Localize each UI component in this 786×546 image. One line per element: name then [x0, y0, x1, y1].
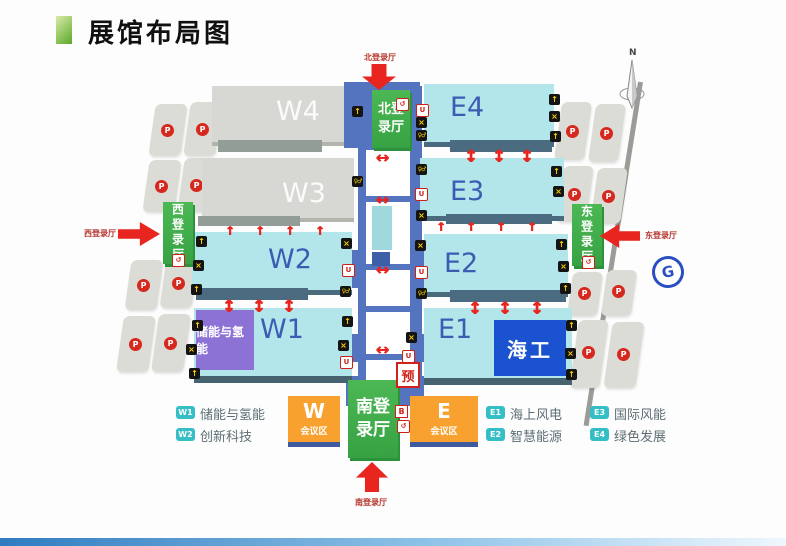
conference-area-east: E 会议区: [410, 396, 478, 447]
hall-w4-label: W4: [276, 96, 320, 127]
restroom-icon: ♀♂: [416, 130, 427, 141]
compass-north-label: N: [629, 48, 637, 58]
restroom-icon: ♀♂: [416, 288, 427, 299]
parking-icon: P: [129, 338, 142, 351]
drink-icon: U: [415, 188, 428, 201]
parking-icon: P: [602, 190, 615, 203]
dining-icon: ×: [416, 210, 427, 221]
drink-icon: U: [342, 264, 355, 277]
entry-arrow-up: ↑: [285, 225, 295, 237]
flow-arrow-vertical: ↕: [222, 299, 236, 316]
service-icon: ↺: [396, 98, 409, 111]
entry-arrow-up: ↑: [315, 225, 325, 237]
gate-icon: ↑: [189, 368, 200, 379]
metro-logo: G: [649, 253, 687, 291]
entry-arrow-up: ↑: [496, 221, 506, 233]
flow-arrow-vertical: ↕: [498, 301, 512, 318]
gate-icon: ↑: [352, 106, 363, 117]
restroom-icon: ♀♂: [416, 164, 427, 175]
legend-badge-w2: W2: [176, 428, 195, 441]
south-entrance-caption: 南登录厅: [355, 497, 387, 508]
legend-label-w1: 储能与氢能: [200, 404, 265, 423]
gate-icon: ↑: [192, 320, 203, 331]
dining-icon: ×: [553, 186, 564, 197]
legend-label-e2: 智慧能源: [510, 426, 562, 445]
parking-icon: P: [578, 287, 591, 300]
dining-icon: ×: [193, 260, 204, 271]
parking-icon: P: [582, 346, 595, 359]
legend-label-e4: 绿色发展: [614, 426, 666, 445]
drink-icon: U: [415, 266, 428, 279]
parking-icon: P: [164, 337, 177, 350]
entrance-south-hall-label: 南登录厅: [355, 396, 392, 442]
legend-badge-e2: E2: [486, 428, 505, 441]
flow-arrow-vertical: ↕: [282, 299, 296, 316]
entry-arrow-up: ↑: [255, 225, 265, 237]
service-icon: ↺: [172, 254, 185, 267]
flow-arrow-vertical: ↕: [530, 301, 544, 318]
flow-arrow-vertical: ↕: [464, 149, 478, 166]
entry-arrow-up: ↑: [527, 221, 537, 233]
parking-icon: P: [568, 188, 581, 201]
gate-icon: ↑: [550, 131, 561, 142]
flow-arrow-vertical: ↕: [520, 149, 534, 166]
legend-badge-e3: E3: [590, 406, 609, 419]
legend-badge-e1: E1: [486, 406, 505, 419]
legend-badge-e4: E4: [590, 428, 609, 441]
drink-icon: U: [340, 356, 353, 369]
north-entrance-caption: 北登录厅: [364, 52, 396, 63]
gate-icon: ↑: [556, 239, 567, 250]
gate-icon: ↑: [196, 236, 207, 247]
zone-marine-engineering-label: 海工: [507, 334, 553, 363]
corridor-bridge: [372, 206, 392, 250]
b-service-badge: B: [395, 405, 408, 418]
conference-west-letter: W: [303, 401, 325, 421]
parking-icon: P: [612, 285, 625, 298]
parking-icon: P: [137, 279, 150, 292]
legend-label-e1: 海上风电: [510, 404, 562, 423]
service-icon: ↺: [397, 420, 410, 433]
hall-e2-label: E2: [444, 248, 478, 279]
hall-e3-label: E3: [450, 176, 484, 207]
restroom-icon: ♀♂: [352, 176, 363, 187]
hall-w3-label: W3: [282, 178, 326, 209]
drink-icon: U: [416, 104, 429, 117]
zone-energy-storage: 储能与氢能: [196, 310, 254, 370]
conference-area-west: W 会议区: [288, 396, 340, 447]
parking-icon: P: [161, 124, 174, 137]
legend-label-e3: 国际风能: [614, 404, 666, 423]
legend-badge-w1: W1: [176, 406, 195, 419]
dining-icon: ×: [549, 111, 560, 122]
entry-arrow-up: ↑: [466, 221, 476, 233]
flow-arrow-vertical: ↕: [468, 301, 482, 318]
parking-icon: P: [566, 125, 579, 138]
dining-icon: ×: [406, 332, 417, 343]
west-entrance-caption: 西登录厅: [84, 228, 116, 239]
venue-map: G N P P P P P P P P P P: [0, 0, 786, 546]
parking-icon: P: [617, 348, 630, 361]
hall-e2: E2: [424, 234, 568, 292]
flow-arrow-horizontal: ↔: [376, 262, 389, 278]
hall-w4: W4: [212, 86, 344, 142]
bottom-accent-bar: [0, 538, 786, 546]
gate-icon: ↑: [342, 316, 353, 327]
zone-marine-engineering: 海工: [494, 320, 566, 376]
hall-w3: W3: [202, 158, 354, 218]
gate-icon: ↑: [549, 94, 560, 105]
gate-icon: ↑: [560, 283, 571, 294]
parking-icon: P: [172, 277, 185, 290]
legend-label-w2: 创新科技: [200, 426, 252, 445]
east-entrance-arrow: [600, 224, 640, 248]
hall-ledge: [218, 140, 322, 152]
zone-energy-storage-label: 储能与氢能: [196, 323, 254, 357]
entrance-south-hall: 南登录厅: [348, 380, 398, 458]
dining-icon: ×: [416, 117, 427, 128]
exhibition-layout-page: 展馆布局图 G N P P P P P: [0, 0, 786, 546]
dining-icon: ×: [186, 344, 197, 355]
entry-arrow-up: ↑: [225, 225, 235, 237]
flow-arrow-horizontal: ↔: [376, 150, 389, 166]
hall-w1-label: W1: [260, 314, 304, 345]
gate-icon: ↑: [551, 166, 562, 177]
parking-icon: P: [600, 127, 613, 140]
hall-e4: E4: [424, 84, 554, 142]
east-entrance-caption: 东登录厅: [645, 230, 677, 241]
west-entrance-arrow: [118, 222, 160, 246]
gate-icon: ↑: [566, 369, 577, 380]
hall-w2-label: W2: [268, 244, 312, 275]
parking-icon: P: [196, 123, 209, 136]
dining-icon: ×: [341, 238, 352, 249]
entry-arrow-up: ↑: [436, 221, 446, 233]
flow-arrow-horizontal: ↔: [376, 342, 389, 358]
dining-icon: ×: [565, 348, 576, 359]
hall-e4-label: E4: [450, 92, 484, 123]
flow-arrow-vertical: ↕: [492, 149, 506, 166]
flow-arrow-horizontal: ↔: [376, 192, 389, 208]
south-entrance-arrow: [356, 462, 388, 492]
service-icon: ↺: [582, 256, 595, 269]
gate-icon: ↑: [566, 320, 577, 331]
dining-icon: ×: [415, 240, 426, 251]
conference-west-label: 会议区: [300, 424, 327, 437]
conference-east-letter: E: [437, 401, 451, 421]
reservation-badge: 预: [396, 362, 420, 388]
parking-icon: P: [155, 180, 168, 193]
conference-east-label: 会议区: [430, 424, 457, 437]
hall-w2: W2: [192, 232, 352, 290]
restroom-icon: ♀♂: [340, 286, 351, 297]
dining-icon: ×: [338, 340, 349, 351]
gate-icon: ↑: [191, 284, 202, 295]
dining-icon: ×: [558, 261, 569, 272]
flow-arrow-vertical: ↕: [252, 299, 266, 316]
